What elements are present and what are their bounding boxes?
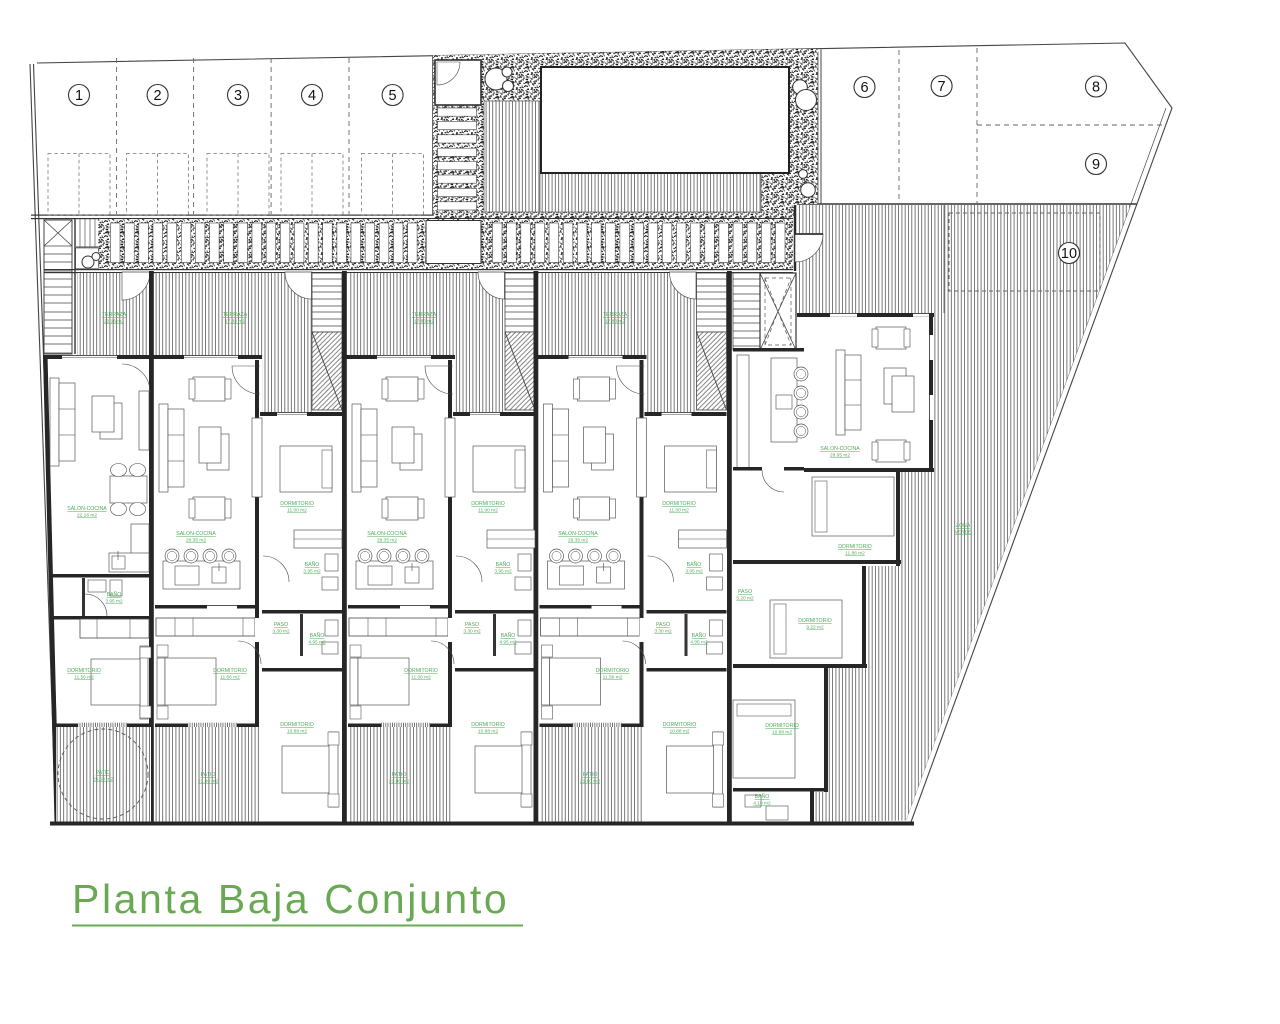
svg-text:3.95 m2: 3.95 m2: [303, 569, 321, 575]
svg-text:17.83 m2: 17.83 m2: [605, 319, 625, 325]
svg-text:11.88 m2: 11.88 m2: [845, 551, 865, 557]
svg-text:17.83 m2: 17.83 m2: [414, 319, 434, 325]
svg-text:11.00 m2: 11.00 m2: [287, 508, 307, 514]
svg-text:DORMITORIO: DORMITORIO: [765, 723, 799, 729]
svg-text:10.88 m2: 10.88 m2: [669, 729, 689, 735]
svg-text:PATIO: PATIO: [96, 770, 111, 776]
svg-text:BAÑO: BAÑO: [692, 632, 707, 639]
svg-text:3.30 m2: 3.30 m2: [463, 629, 481, 635]
svg-text:7: 7: [938, 79, 946, 95]
svg-text:DORMITORIO: DORMITORIO: [280, 501, 314, 507]
svg-text:DORMITORIO: DORMITORIO: [213, 668, 247, 674]
svg-text:11.00 m2: 11.00 m2: [478, 508, 498, 514]
svg-text:5: 5: [389, 88, 397, 104]
svg-text:TERRAZA: TERRAZA: [603, 312, 628, 318]
svg-text:4: 4: [308, 88, 316, 104]
svg-text:3.95 m2: 3.95 m2: [105, 599, 123, 605]
svg-text:PATIO: PATIO: [201, 772, 216, 778]
svg-text:DORMITORIO: DORMITORIO: [662, 501, 696, 507]
svg-text:SALON-COCINA: SALON-COCINA: [558, 531, 598, 537]
svg-text:PASO: PASO: [656, 622, 670, 628]
svg-text:4.95 m2: 4.95 m2: [308, 640, 326, 646]
svg-text:PATIO: PATIO: [392, 772, 407, 778]
svg-text:DORMITORIO: DORMITORIO: [404, 668, 438, 674]
svg-text:3.95 m2: 3.95 m2: [685, 569, 703, 575]
svg-text:9.22 m2: 9.22 m2: [806, 625, 824, 631]
svg-text:DORMITORIO: DORMITORIO: [838, 544, 872, 550]
svg-text:TERRAZA: TERRAZA: [102, 312, 127, 318]
svg-text:3.30 m2: 3.30 m2: [272, 629, 290, 635]
svg-text:Planta Baja Conjunto: Planta Baja Conjunto: [72, 876, 509, 922]
svg-text:VERDE: VERDE: [955, 530, 972, 536]
svg-text:ZONA: ZONA: [956, 523, 971, 529]
svg-text:21.80 m2: 21.80 m2: [580, 779, 600, 785]
svg-text:BAÑO: BAÑO: [755, 793, 770, 800]
svg-text:11.56 m2: 11.56 m2: [220, 675, 240, 681]
svg-text:BAÑO: BAÑO: [496, 561, 511, 568]
svg-text:DORMITORIO: DORMITORIO: [596, 668, 630, 674]
svg-text:29.35 m2: 29.35 m2: [377, 538, 397, 544]
svg-text:DORMITORIO: DORMITORIO: [663, 722, 697, 728]
svg-text:4.95 m2: 4.95 m2: [499, 640, 517, 646]
svg-text:DORMITORIO: DORMITORIO: [471, 501, 505, 507]
svg-text:20.50 m2: 20.50 m2: [93, 777, 113, 783]
svg-text:5.20 m2: 5.20 m2: [736, 596, 754, 602]
svg-text:3.30 m2: 3.30 m2: [654, 629, 672, 635]
svg-text:3: 3: [234, 88, 242, 104]
svg-text:SALON-COCINA: SALON-COCINA: [820, 446, 860, 452]
svg-text:3.95 m2: 3.95 m2: [494, 569, 512, 575]
svg-text:10.88 m2: 10.88 m2: [772, 730, 792, 736]
svg-text:22.16 m2: 22.16 m2: [104, 319, 124, 325]
svg-text:SALON-COCINA: SALON-COCINA: [67, 506, 107, 512]
svg-text:29.35 m2: 29.35 m2: [186, 538, 206, 544]
svg-text:DORMITORIO: DORMITORIO: [280, 722, 314, 728]
svg-text:BAÑO: BAÑO: [501, 632, 516, 639]
svg-text:PASO: PASO: [738, 589, 752, 595]
svg-text:PATIO: PATIO: [583, 772, 598, 778]
svg-text:28.95 m2: 28.95 m2: [830, 453, 850, 459]
svg-text:9: 9: [1092, 157, 1100, 173]
svg-text:11.00 m2: 11.00 m2: [669, 508, 689, 514]
svg-text:21.80 m2: 21.80 m2: [198, 779, 218, 785]
svg-text:PASO: PASO: [465, 622, 479, 628]
svg-text:10.88 m2: 10.88 m2: [478, 729, 498, 735]
svg-text:TERRAZA: TERRAZA: [412, 312, 437, 318]
svg-text:22.16 m2: 22.16 m2: [77, 513, 97, 519]
svg-text:DORMITORIO: DORMITORIO: [67, 668, 101, 674]
svg-text:DORMITORIO: DORMITORIO: [798, 618, 832, 624]
svg-text:4.10 m2: 4.10 m2: [753, 801, 771, 807]
svg-text:4.95 m2: 4.95 m2: [690, 640, 708, 646]
svg-text:11.56 m2: 11.56 m2: [603, 675, 623, 681]
svg-text:BAÑO: BAÑO: [305, 561, 320, 568]
svg-text:8: 8: [1092, 80, 1100, 96]
svg-text:10.88 m2: 10.88 m2: [287, 729, 307, 735]
svg-text:BAÑO: BAÑO: [687, 561, 702, 568]
svg-text:6: 6: [860, 80, 868, 96]
svg-text:10: 10: [1061, 246, 1077, 262]
svg-text:2: 2: [154, 88, 162, 104]
svg-text:29.35 m2: 29.35 m2: [568, 538, 588, 544]
svg-text:11.56 m2: 11.56 m2: [74, 675, 94, 681]
svg-text:SALON-COCINA: SALON-COCINA: [367, 531, 407, 537]
svg-text:SALON-COCINA: SALON-COCINA: [176, 531, 216, 537]
svg-text:11.56 m2: 11.56 m2: [411, 675, 431, 681]
svg-text:DORMITORIO: DORMITORIO: [471, 722, 505, 728]
svg-text:PASO: PASO: [274, 622, 288, 628]
svg-text:BAÑO: BAÑO: [310, 632, 325, 639]
svg-text:BAÑO: BAÑO: [107, 591, 122, 598]
svg-text:21.80 m2: 21.80 m2: [389, 779, 409, 785]
svg-text:1: 1: [75, 88, 83, 104]
svg-text:TERRAZA: TERRAZA: [223, 312, 248, 318]
svg-text:17.83 m2: 17.83 m2: [225, 319, 245, 325]
